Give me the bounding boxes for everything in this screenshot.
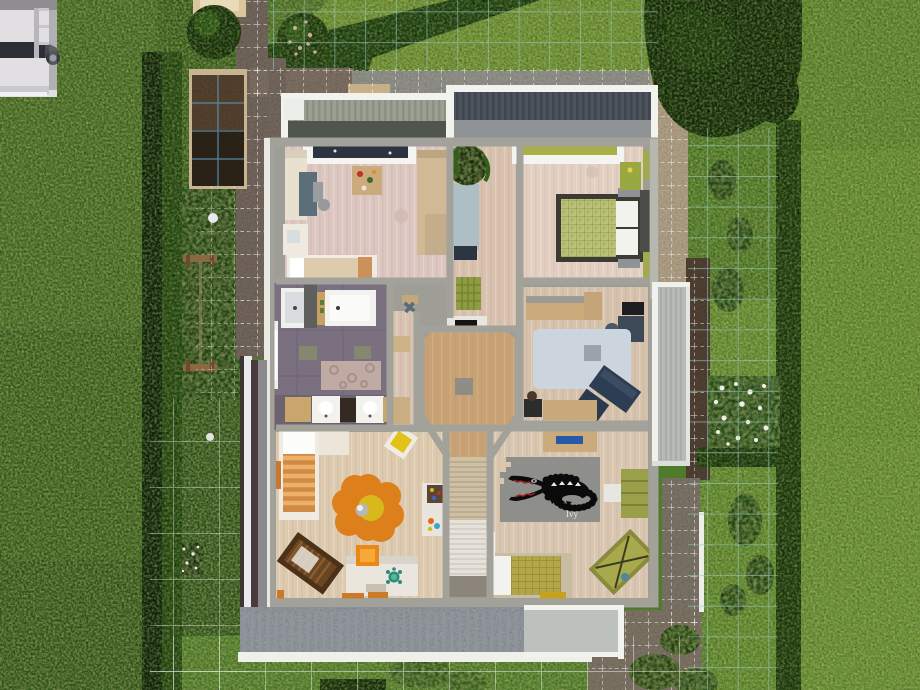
svg-text:Ivy: Ivy <box>566 509 578 519</box>
